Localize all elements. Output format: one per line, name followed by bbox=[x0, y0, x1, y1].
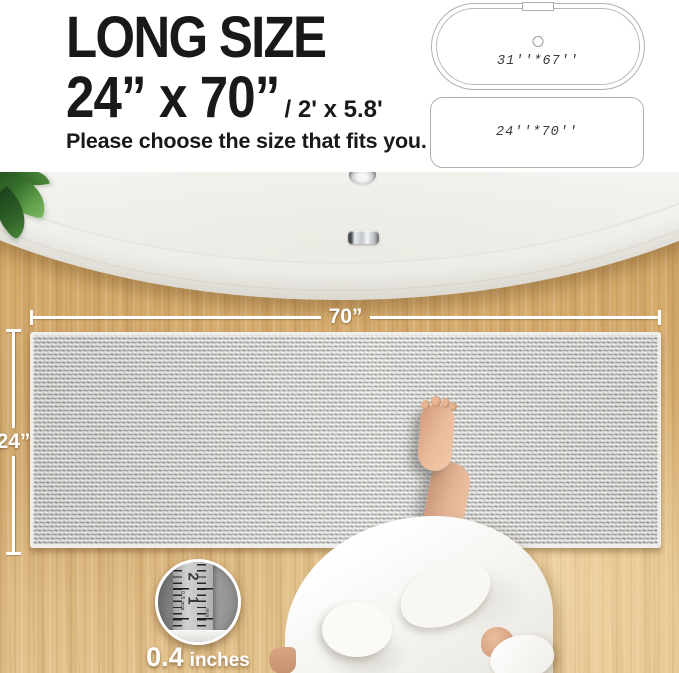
thickness-unit: inches bbox=[190, 650, 250, 671]
thickness-label: 0.4inches bbox=[117, 642, 279, 673]
headline-long-size: LONG SIZE bbox=[66, 4, 325, 71]
thickness-badge: 2 1 0.5 mm mm bbox=[155, 559, 241, 645]
width-dimension-label: 70” bbox=[321, 305, 371, 329]
mat-outline-diagram: 24''*70'' bbox=[430, 97, 644, 168]
dimension-line-segment bbox=[12, 332, 15, 428]
ruler-number: 1 bbox=[185, 596, 202, 604]
mat-edge-cross-section bbox=[158, 630, 238, 642]
size-inches: 24” x 70” bbox=[66, 64, 279, 131]
ruler-number: 2 bbox=[185, 572, 202, 580]
model-toe bbox=[449, 402, 457, 411]
bathtub-outline-diagram: 31''*67'' bbox=[431, 3, 645, 90]
size-line: 24” x 70” / 2' x 5.8' bbox=[66, 64, 383, 131]
product-image: LONG SIZE 24” x 70” / 2' x 5.8' Please c… bbox=[0, 0, 679, 673]
tub-size-label: 31''*67'' bbox=[432, 54, 644, 69]
mat-size-label: 24''*70'' bbox=[496, 125, 578, 140]
ruler-mm-label: 0.5 mm bbox=[179, 591, 185, 611]
overflow-plate-icon bbox=[348, 231, 379, 244]
faucet-notch bbox=[522, 2, 554, 11]
width-dimension-line: 70” bbox=[30, 306, 661, 328]
ruler-mm-label: mm bbox=[204, 608, 210, 617]
dimension-line-segment bbox=[12, 456, 15, 552]
dimension-line-segment bbox=[370, 316, 658, 319]
model-foot bbox=[417, 404, 456, 472]
height-dimension-line: 24” bbox=[0, 329, 27, 555]
dimension-line-segment bbox=[33, 316, 321, 319]
size-feet: / 2' x 5.8' bbox=[285, 96, 383, 124]
bath-mat bbox=[30, 332, 661, 548]
drain-circle-icon bbox=[533, 36, 544, 47]
dimension-end-cap bbox=[6, 552, 21, 555]
bathrobe-fold bbox=[322, 602, 392, 657]
bathroom-photo: 70” 24” 2 1 bbox=[0, 172, 679, 673]
thickness-value: 0.4 bbox=[146, 642, 184, 672]
height-dimension-label: 24” bbox=[0, 428, 30, 456]
choose-size-subtitle: Please choose the size that fits you. bbox=[66, 129, 427, 154]
dimension-end-cap bbox=[658, 310, 661, 325]
ruler-photo: 2 1 0.5 mm mm bbox=[173, 559, 213, 634]
model-toe bbox=[421, 400, 430, 410]
model-toe bbox=[431, 396, 441, 407]
